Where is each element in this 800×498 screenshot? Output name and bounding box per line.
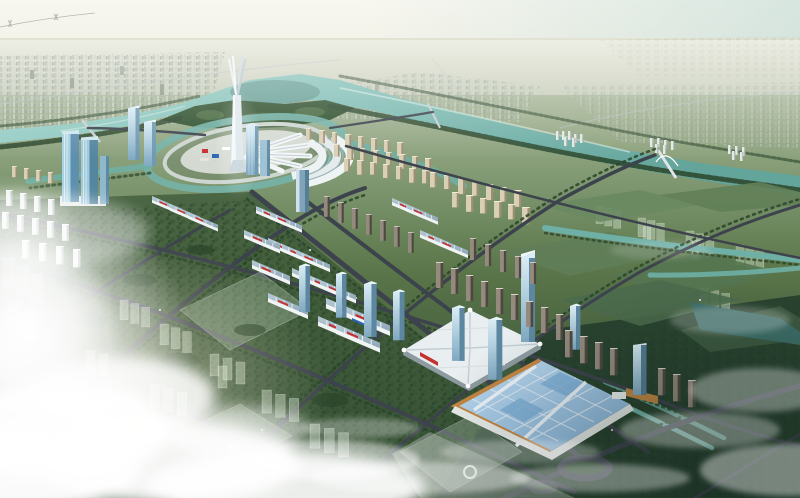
plaza-se-tower	[296, 166, 309, 212]
horizon-haze	[0, 40, 800, 160]
rendering-canvas	[0, 0, 800, 498]
masterplan-rendering	[0, 0, 800, 498]
